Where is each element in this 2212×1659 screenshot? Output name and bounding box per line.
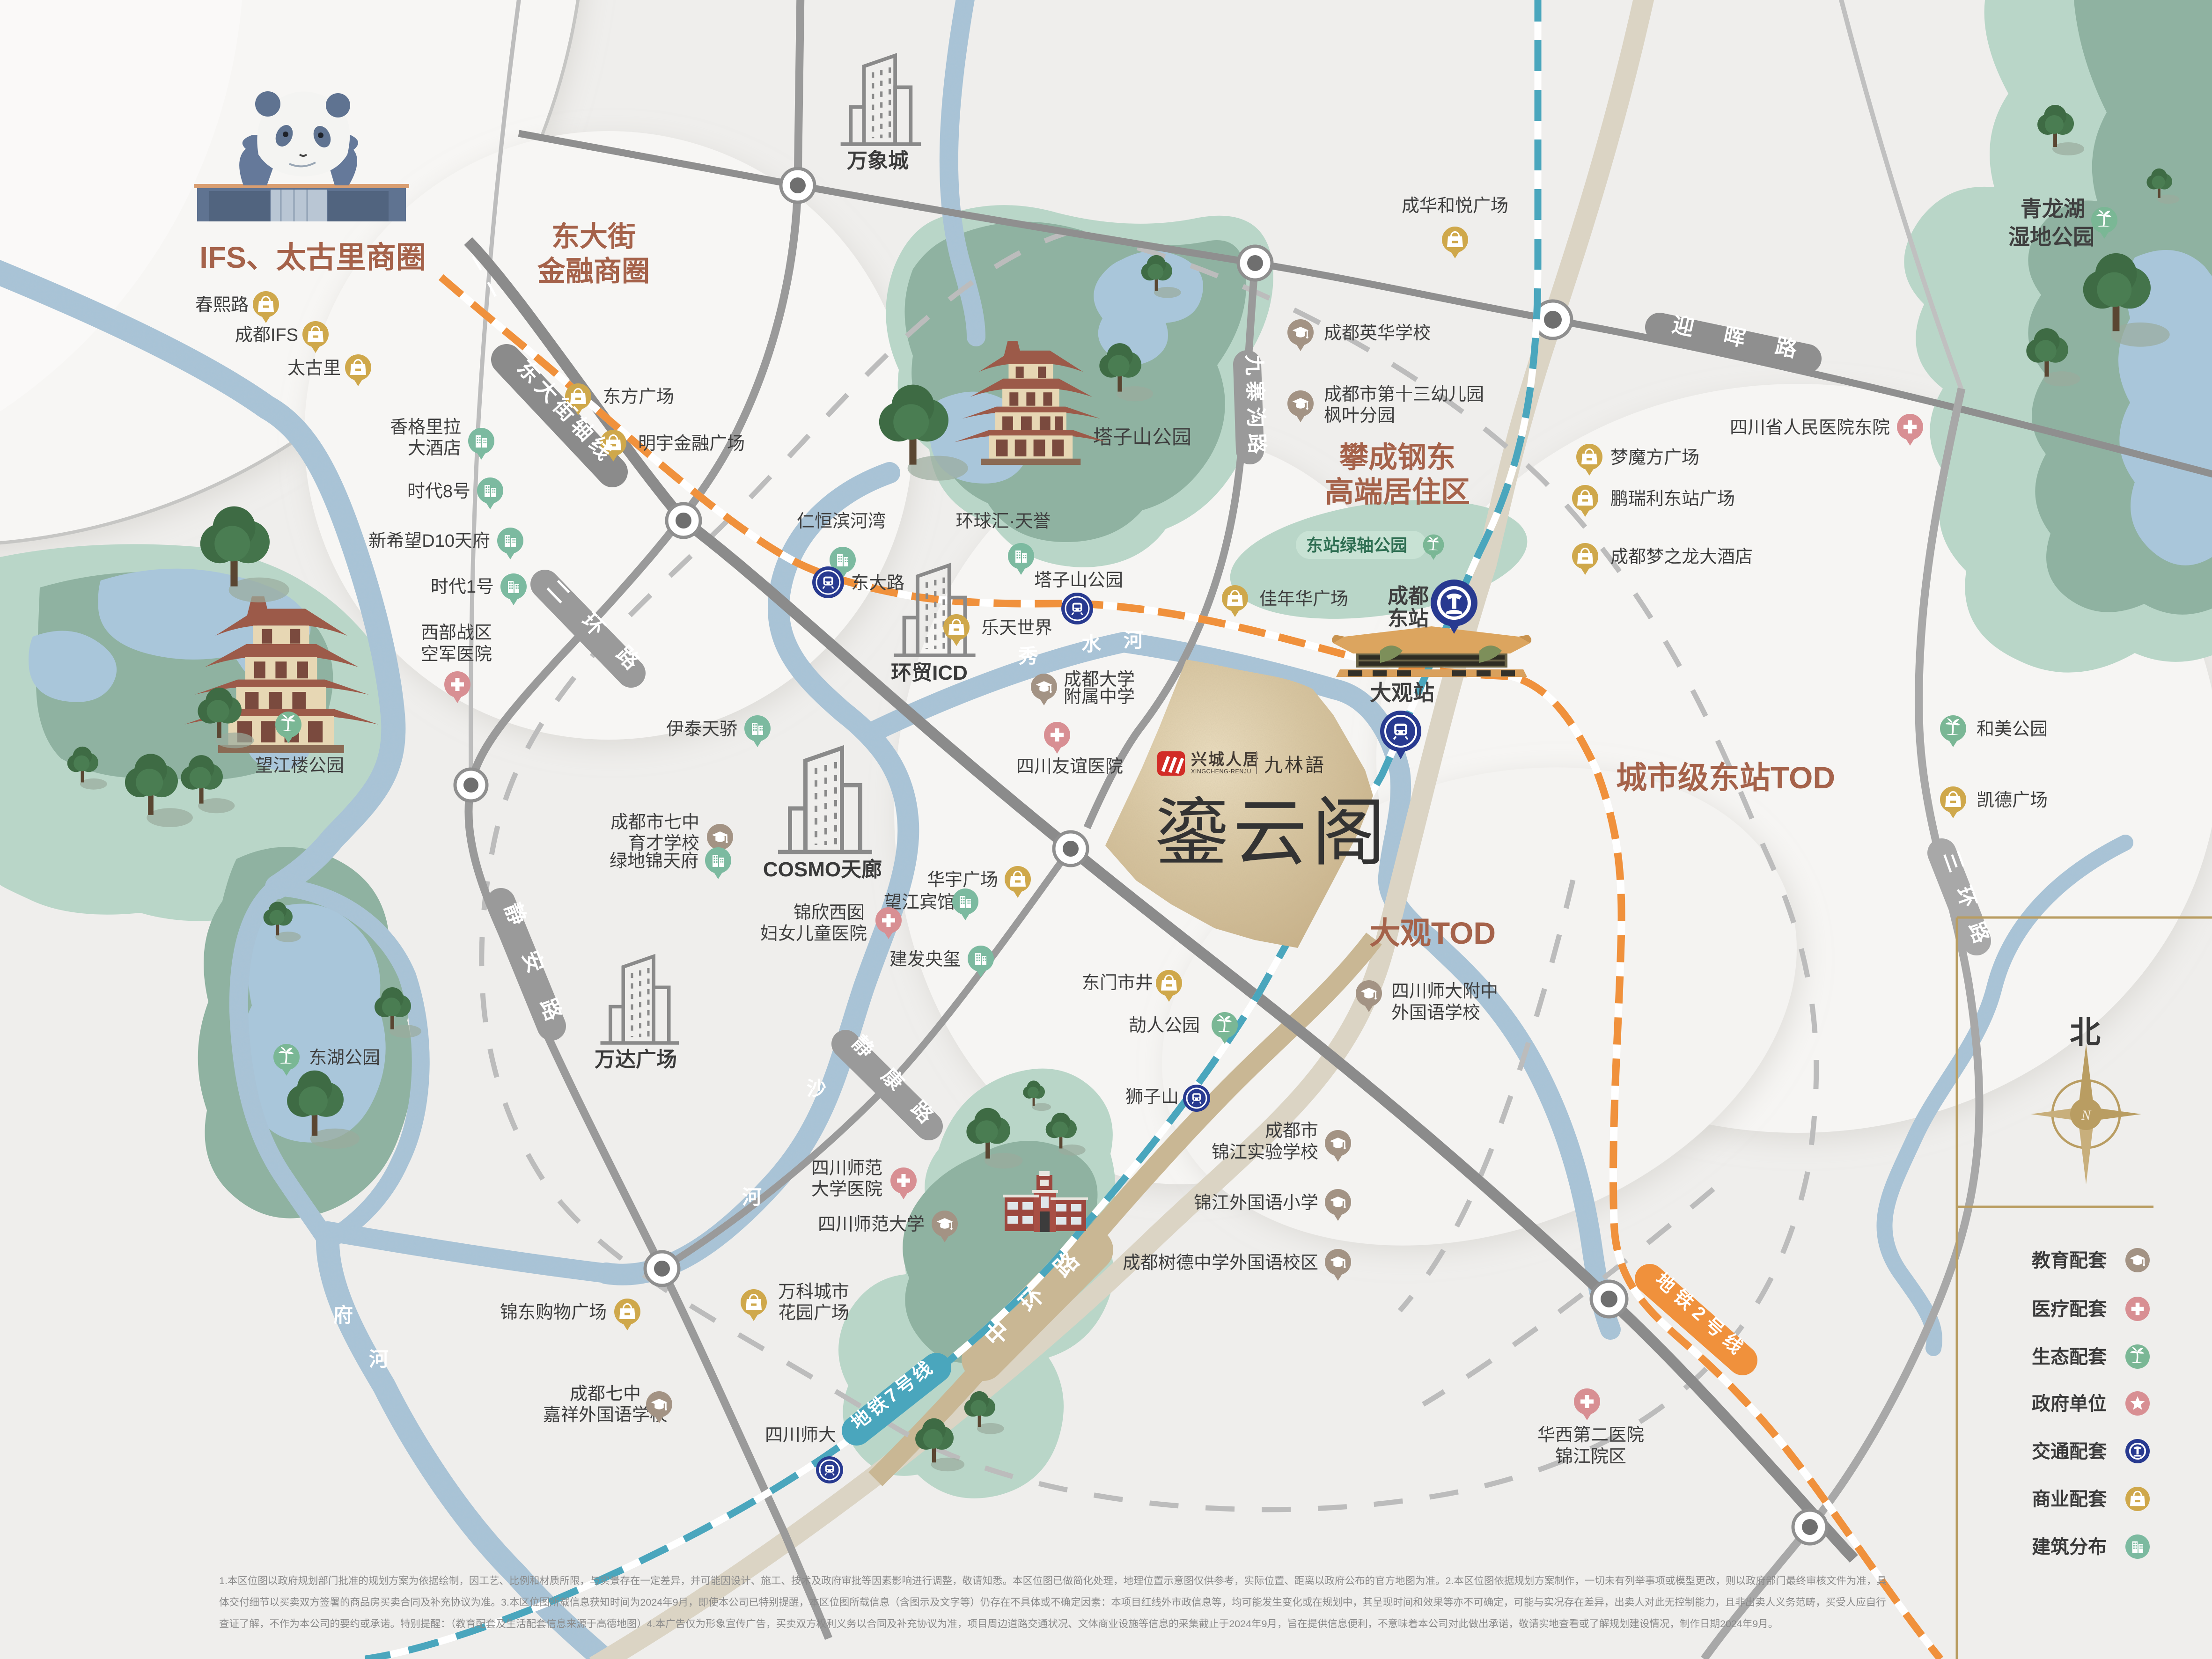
svg-text:青龙湖: 青龙湖 [2021, 197, 2085, 221]
svg-text:和美公园: 和美公园 [1977, 719, 2048, 739]
svg-text:华西第二医院: 华西第二医院 [1537, 1425, 1644, 1445]
svg-text:华宇广场: 华宇广场 [927, 870, 998, 890]
svg-text:望江楼公园: 望江楼公园 [255, 756, 344, 776]
svg-text:大酒店: 大酒店 [408, 439, 461, 458]
svg-text:河: 河 [1124, 629, 1143, 651]
svg-text:四川师大附中: 四川师大附中 [1391, 982, 1498, 1001]
svg-text:成都七中: 成都七中 [570, 1384, 641, 1404]
svg-text:梦魔方广场: 梦魔方广场 [1610, 448, 1699, 468]
svg-text:建发央玺: 建发央玺 [889, 950, 961, 969]
svg-text:成都IFS: 成都IFS [235, 325, 298, 345]
svg-text:太古里: 太古里 [287, 359, 341, 378]
svg-text:大观站: 大观站 [1370, 681, 1434, 705]
svg-text:鎏云阁: 鎏云阁 [1154, 793, 1390, 875]
svg-text:攀成钢东: 攀成钢东 [1339, 441, 1455, 474]
svg-text:成都英华学校: 成都英华学校 [1324, 323, 1431, 343]
svg-text:N: N [2081, 1108, 2092, 1123]
svg-text:秀: 秀 [1018, 645, 1038, 667]
svg-text:时代8号: 时代8号 [407, 482, 470, 501]
svg-text:成都树德中学外国语校区: 成都树德中学外国语校区 [1123, 1253, 1318, 1273]
svg-text:伊泰天骄: 伊泰天骄 [666, 719, 737, 739]
svg-text:锦欣西囡: 锦欣西囡 [794, 903, 865, 923]
svg-text:四川师范大学: 四川师范大学 [818, 1215, 925, 1234]
svg-text:佳年华广场: 佳年华广场 [1259, 589, 1348, 609]
svg-text:仁恒滨河湾: 仁恒滨河湾 [797, 512, 886, 531]
svg-text:外国语学校: 外国语学校 [1391, 1003, 1480, 1023]
svg-text:东方广场: 东方广场 [603, 387, 674, 407]
svg-text:东站绿轴公园: 东站绿轴公园 [1306, 536, 1407, 555]
svg-text:建筑分布: 建筑分布 [2032, 1537, 2107, 1557]
svg-text:成都: 成都 [1388, 585, 1429, 608]
svg-text:空军医院: 空军医院 [421, 645, 492, 664]
svg-text:教育配套: 教育配套 [2032, 1250, 2107, 1271]
svg-text:万科城市: 万科城市 [778, 1282, 849, 1302]
svg-text:四川省人民医院东院: 四川省人民医院东院 [1730, 418, 1890, 438]
svg-text:凯德广场: 凯德广场 [1977, 791, 2048, 810]
svg-text:香格里拉: 香格里拉 [390, 418, 461, 437]
svg-text:医疗配套: 医疗配套 [2032, 1299, 2107, 1320]
svg-text:河: 河 [369, 1348, 389, 1370]
svg-text:锦江外国语小学: 锦江外国语小学 [1194, 1193, 1318, 1213]
svg-text:政府单位: 政府单位 [2032, 1394, 2107, 1414]
svg-text:九寨沟路: 九寨沟路 [1242, 354, 1269, 460]
svg-text:九林語: 九林語 [1264, 755, 1326, 776]
svg-text:锦江院区: 锦江院区 [1555, 1447, 1626, 1467]
svg-text:万达广场: 万达广场 [595, 1048, 677, 1071]
svg-text:东湖公园: 东湖公园 [309, 1048, 380, 1068]
svg-text:金融商圈: 金融商圈 [537, 256, 650, 287]
svg-text:四川师大: 四川师大 [765, 1425, 836, 1445]
svg-text:成都市第十三幼儿园: 成都市第十三幼儿园 [1324, 385, 1484, 404]
svg-text:湿地公园: 湿地公园 [2008, 225, 2094, 249]
svg-text:乐天世界: 乐天世界 [981, 618, 1052, 638]
svg-text:成都市: 成都市 [1265, 1121, 1318, 1141]
svg-text:育才学校: 育才学校 [628, 834, 699, 853]
svg-text:北: 北 [2070, 1015, 2101, 1050]
svg-text:高端居住区: 高端居住区 [1325, 476, 1470, 508]
svg-text:锦江实验学校: 锦江实验学校 [1212, 1143, 1318, 1162]
svg-text:四川友谊医院: 四川友谊医院 [1016, 757, 1123, 777]
svg-text:西部战区: 西部战区 [421, 623, 492, 643]
svg-text:妇女儿童医院: 妇女儿童医院 [760, 924, 867, 944]
svg-text:成都市七中: 成都市七中 [610, 813, 699, 832]
svg-text:春熙路: 春熙路 [195, 295, 249, 315]
svg-text:环球汇·天誉: 环球汇·天誉 [956, 512, 1051, 531]
svg-text:水: 水 [1081, 633, 1102, 655]
svg-text:IFS、太古里商圈: IFS、太古里商圈 [199, 241, 426, 274]
svg-text:时代1号: 时代1号 [431, 577, 494, 597]
svg-text:交通配套: 交通配套 [2032, 1441, 2107, 1462]
svg-text:花园广场: 花园广场 [778, 1303, 849, 1323]
svg-text:河: 河 [742, 1186, 762, 1208]
svg-text:东门市井: 东门市井 [1082, 973, 1153, 993]
svg-text:成都梦之龙大酒店: 成都梦之龙大酒店 [1610, 547, 1753, 567]
svg-text:成都大学: 成都大学 [1064, 670, 1135, 690]
svg-text:塔子山公园: 塔子山公园 [1034, 571, 1123, 590]
svg-text:锦东购物广场: 锦东购物广场 [500, 1303, 607, 1322]
svg-text:生态配套: 生态配套 [2032, 1347, 2107, 1367]
svg-text:东站: 东站 [1388, 607, 1429, 630]
svg-text:枫叶分园: 枫叶分园 [1324, 406, 1395, 426]
svg-text:东大街: 东大街 [551, 221, 636, 252]
svg-text:明宇金融广场: 明宇金融广场 [638, 434, 745, 454]
svg-text:四川师范: 四川师范 [811, 1159, 882, 1178]
svg-text:大观TOD: 大观TOD [1369, 916, 1496, 950]
svg-text:环贸ICD: 环贸ICD [891, 661, 968, 684]
svg-text:查证了解，不作为本公司的要约或承诺。特别提醒：（教育配套及生: 查证了解，不作为本公司的要约或承诺。特别提醒：（教育配套及生活配套信息来源于高德… [219, 1618, 1778, 1630]
svg-text:鹏瑞利东站广场: 鹏瑞利东站广场 [1610, 489, 1735, 509]
svg-text:劼人公园: 劼人公园 [1129, 1016, 1200, 1035]
svg-text:成华和悦广场: 成华和悦广场 [1402, 196, 1508, 216]
svg-text:1.本区位图以政府规划部门批准的规划方案为依据绘制，因工艺、: 1.本区位图以政府规划部门批准的规划方案为依据绘制，因工艺、比例和材质所限，与实… [219, 1575, 1887, 1586]
svg-text:大学医院: 大学医院 [811, 1180, 882, 1199]
svg-text:沙: 沙 [807, 1078, 826, 1100]
svg-text:体交付细节以买卖双方签署的商品房买卖合同及补充协议为准。3.: 体交付细节以买卖双方签署的商品房买卖合同及补充协议为准。3.本区位图所载信息获知… [219, 1597, 1886, 1608]
svg-text:商业配套: 商业配套 [2032, 1489, 2107, 1510]
svg-text:东大路: 东大路 [851, 573, 904, 593]
svg-text:附属中学: 附属中学 [1064, 687, 1135, 707]
svg-text:狮子山: 狮子山 [1125, 1087, 1179, 1107]
svg-text:COSMO天廊: COSMO天廊 [763, 858, 882, 881]
svg-text:城市级东站TOD: 城市级东站TOD [1616, 760, 1835, 795]
svg-text:XINGCHENG-RENJU: XINGCHENG-RENJU [1191, 768, 1251, 775]
svg-text:府: 府 [333, 1304, 353, 1326]
svg-text:兴城人居: 兴城人居 [1191, 751, 1260, 769]
svg-text:新希望D10天府: 新希望D10天府 [368, 531, 490, 551]
svg-text:万象城: 万象城 [847, 149, 909, 172]
svg-text:绿地锦天府: 绿地锦天府 [610, 852, 698, 871]
svg-text:塔子山公园: 塔子山公园 [1093, 426, 1191, 448]
